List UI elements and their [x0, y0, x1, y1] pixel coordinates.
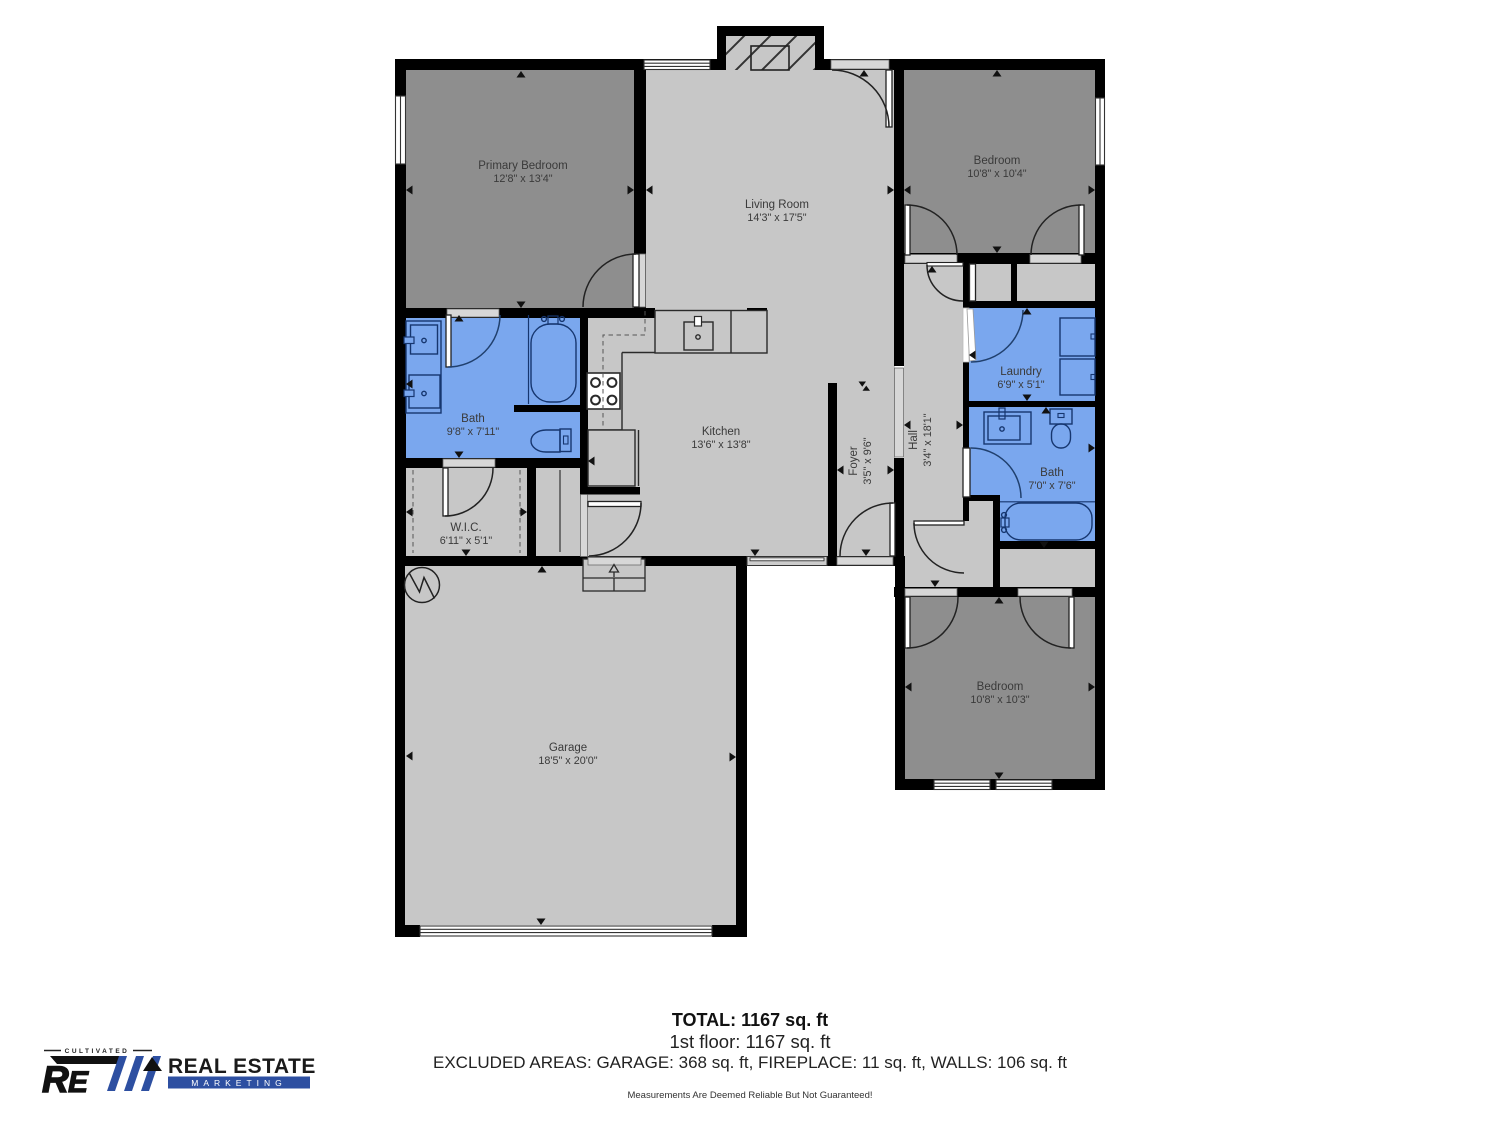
- svg-text:Kitchen: Kitchen: [702, 426, 740, 438]
- svg-text:13'6" x 13'8": 13'6" x 13'8": [691, 439, 750, 451]
- svg-text:CULTIVATED: CULTIVATED: [65, 1048, 130, 1055]
- svg-text:TOTAL: 1167 sq. ft: TOTAL: 1167 sq. ft: [672, 1010, 828, 1030]
- svg-text:Foyer: Foyer: [848, 446, 860, 476]
- svg-text:9'8" x 7'11": 9'8" x 7'11": [447, 426, 500, 438]
- svg-text:Primary Bedroom: Primary Bedroom: [478, 160, 567, 172]
- svg-text:Bedroom: Bedroom: [977, 681, 1024, 693]
- svg-text:3'4" x 18'1": 3'4" x 18'1": [922, 413, 934, 466]
- svg-text:MARKETING: MARKETING: [191, 1078, 287, 1088]
- svg-text:12'8" x 13'4": 12'8" x 13'4": [493, 173, 552, 185]
- svg-text:6'9" x 5'1": 6'9" x 5'1": [997, 379, 1044, 391]
- svg-text:1st floor: 1167 sq. ft: 1st floor: 1167 sq. ft: [669, 1031, 830, 1052]
- svg-text:Living Room: Living Room: [745, 199, 809, 211]
- svg-text:Laundry: Laundry: [1000, 366, 1042, 378]
- svg-text:W.I.C.: W.I.C.: [450, 522, 481, 534]
- svg-text:REAL ESTATE: REAL ESTATE: [168, 1055, 316, 1078]
- svg-text:Garage: Garage: [549, 742, 587, 754]
- svg-text:E: E: [68, 1066, 89, 1099]
- svg-text:10'8" x 10'4": 10'8" x 10'4": [967, 168, 1026, 180]
- svg-text:18'5" x 20'0": 18'5" x 20'0": [538, 755, 597, 767]
- svg-text:7'0" x 7'6": 7'0" x 7'6": [1028, 480, 1075, 492]
- svg-text:10'8" x 10'3": 10'8" x 10'3": [970, 694, 1029, 706]
- svg-text:Bath: Bath: [1040, 467, 1064, 479]
- svg-text:Bedroom: Bedroom: [974, 155, 1021, 167]
- svg-text:Bath: Bath: [461, 413, 485, 425]
- svg-text:Measurements Are Deemed Reliab: Measurements Are Deemed Reliable But Not…: [627, 1090, 872, 1101]
- svg-text:14'3" x 17'5": 14'3" x 17'5": [747, 212, 806, 224]
- svg-text:Hall: Hall: [908, 430, 920, 450]
- svg-text:EXCLUDED AREAS: GARAGE: 368 sq: EXCLUDED AREAS: GARAGE: 368 sq. ft, FIRE…: [433, 1053, 1067, 1072]
- svg-text:6'11" x 5'1": 6'11" x 5'1": [440, 535, 493, 547]
- svg-text:3'5" x 9'6": 3'5" x 9'6": [862, 437, 874, 484]
- svg-text:R: R: [42, 1059, 69, 1100]
